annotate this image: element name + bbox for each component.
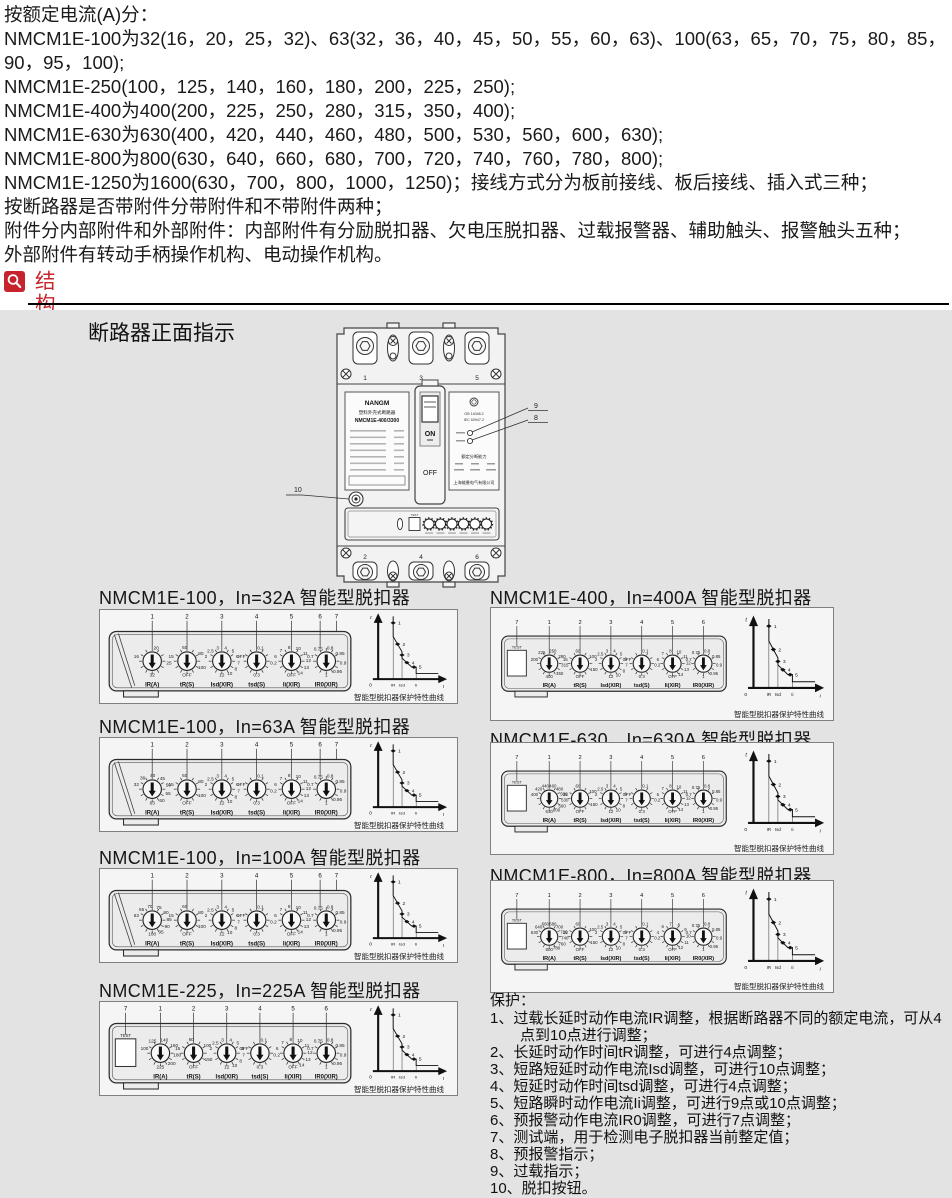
- curve-point-label: 4: [788, 941, 791, 947]
- dial-scale-value: 2.5: [597, 652, 604, 657]
- dial-scale-value: 10: [296, 646, 302, 651]
- callout-number: 6: [318, 742, 322, 749]
- curve-caption: 智能型脱扣器保护特性曲线: [345, 951, 453, 962]
- trip-curve-chart: t012345IRIsdIiI: [739, 747, 825, 837]
- curve-point-label: 4: [412, 660, 415, 665]
- dial-scale-value: 12: [608, 947, 613, 952]
- unit-section-title: NMCM1E-100，In=100A 智能型脱扣器: [99, 844, 421, 870]
- dial-scale-value: 60: [576, 648, 581, 653]
- x-tick-label: IR: [391, 1075, 395, 1080]
- dial-scale-value: 0.9: [340, 1052, 347, 1057]
- protection-item: 3、短路短延时动作电流Isd调整，可进行10点调整；: [490, 1061, 950, 1078]
- dial-scale-value: 0.1: [642, 784, 649, 789]
- curve-point-label: 5: [795, 945, 798, 951]
- unit-section-title: NMCM1E-225，In=225A 智能型脱扣器: [99, 977, 421, 1003]
- dial-scale-value: OFF: [668, 947, 677, 952]
- callout-number: 4: [640, 893, 643, 899]
- curve-point-label: 3: [407, 1045, 410, 1050]
- dial-scale-value: 0.7: [307, 913, 314, 918]
- dial-scale-value: OFF: [576, 947, 585, 952]
- curve-point-label: 2: [778, 782, 781, 788]
- dial-scale-value: 100: [198, 793, 206, 798]
- trip-button: [349, 492, 363, 506]
- dial-scale-value: 0.3: [253, 801, 260, 806]
- intro-line: NMCM1E-800为800(630，640，660，680，700，720，7…: [4, 147, 950, 171]
- origin-label: 0: [369, 811, 372, 816]
- dial-scale-value: 4: [229, 1037, 232, 1042]
- unit-section-title: NMCM1E-100，In=32A 智能型脱扣器: [99, 584, 410, 610]
- dial-scale-value: 225: [538, 650, 546, 655]
- dial-label: Ii(XIR): [665, 818, 681, 824]
- x-axis-label: I: [443, 684, 445, 689]
- dial-label: IR0(XIR): [315, 941, 338, 947]
- dial-scale-value: OFF: [287, 932, 297, 937]
- callout-number: 5: [671, 893, 674, 899]
- curve-point-marker: [391, 1013, 396, 1017]
- dial-scale-value: 60: [159, 798, 165, 803]
- dial-label: IR(A): [145, 810, 159, 816]
- brand-logo: NANGM: [365, 400, 390, 407]
- dial-scale-value: 75: [156, 905, 162, 910]
- dial-scale-value: 1: [325, 932, 328, 937]
- dial-scale-value: 0.7: [686, 792, 693, 797]
- dial-scale-value: 2: [205, 913, 208, 918]
- protection-item: 7、测试端，用于检测电子脱扣器当前整定值；: [490, 1129, 950, 1146]
- curve-point-label: 2: [402, 770, 405, 775]
- dial-scale-value: 10: [296, 905, 302, 910]
- dial-scale-value: 12: [608, 674, 613, 679]
- x-tick-label: Isd: [775, 692, 782, 697]
- dial-scale-value: 8: [290, 1037, 293, 1042]
- callout-number: 3: [220, 873, 224, 880]
- svg-text:GB 14048.2: GB 14048.2: [464, 412, 483, 416]
- dial-scale-value: 25: [166, 660, 172, 665]
- dial-scale-value: OFF: [623, 792, 632, 797]
- dial-scale-value: 14: [298, 799, 304, 804]
- protection-item: 4、短延时动作时间tsd调整，可进行4点调整；: [490, 1078, 950, 1095]
- curve-point-marker: [771, 921, 776, 925]
- svg-text:4: 4: [419, 554, 423, 561]
- dial-scale-value: 40: [150, 773, 156, 778]
- trip-curve-chart: t012345IRIsdIiI: [739, 612, 825, 702]
- callout-9: 9: [534, 403, 538, 410]
- dial-scale-value: 14: [299, 1063, 305, 1068]
- dial-scale-value: 0.7: [307, 654, 314, 659]
- curve-point-marker: [395, 1034, 400, 1038]
- curve-point-marker: [771, 783, 776, 787]
- dial-scale-value: 4: [224, 773, 227, 778]
- dial-scale-value: 2.5: [212, 1041, 219, 1046]
- x-tick-label: Ii: [415, 811, 417, 816]
- dial-scale-value: 0.9: [716, 936, 723, 941]
- dial-scale-value: 0.95: [333, 928, 343, 933]
- x-tick-label: Ii: [791, 827, 793, 832]
- dial-label: tsd(S): [248, 941, 265, 947]
- dial-scale-value: 15: [175, 1046, 181, 1051]
- unit-section-box: TEST712345663064066068070072074076078080…: [490, 880, 834, 993]
- dial-label: tsd(S): [248, 682, 265, 688]
- dial-scale-value: 7: [237, 919, 240, 924]
- origin-label: 0: [744, 965, 747, 971]
- intro-line: 外部附件有转动手柄操作机构、电动操作机构。: [4, 243, 950, 267]
- dial-scale-value: 8: [288, 904, 291, 909]
- dial-scale-value: 14: [678, 672, 683, 677]
- dial-scale-value: 32: [134, 782, 140, 787]
- dial-scale-value: 7: [280, 648, 283, 653]
- curve-point-label: 4: [412, 788, 415, 793]
- curve-point-label: 1: [398, 749, 401, 754]
- dial-scale-value: 0.85: [336, 779, 346, 784]
- dial-scale-value: OFF: [182, 673, 192, 678]
- svg-text:额定分断能力: 额定分断能力: [461, 453, 486, 460]
- curve-point-label: 5: [795, 807, 798, 813]
- curve-caption: 智能型脱扣器保护特性曲线: [729, 843, 829, 854]
- callout-number: 4: [255, 873, 259, 880]
- y-axis-label: t: [370, 1007, 372, 1013]
- dial-scale-value: 8: [234, 667, 237, 672]
- y-axis-label: t: [745, 753, 747, 759]
- unit-section-box: TEST7123456100125140160180200225IR(A)156…: [99, 1001, 458, 1096]
- dial-scale-value: OFF: [236, 654, 246, 659]
- svg-text:塑料外壳式断路器: 塑料外壳式断路器: [359, 409, 396, 416]
- callout-number: 4: [255, 614, 259, 621]
- callout-number: 5: [290, 873, 294, 880]
- dial-scale-value: OFF: [287, 801, 297, 806]
- dial-scale-value: 6: [274, 913, 277, 918]
- dial-scale-value: OFF: [668, 674, 677, 679]
- curve-point-marker: [391, 880, 396, 884]
- dial-label: tsd(S): [634, 956, 650, 962]
- dial-label: IR(A): [543, 956, 556, 962]
- dial-label: Isd(XIR): [211, 810, 233, 816]
- dial-scale-value: 80: [198, 910, 204, 915]
- dial-label: IR0(XIR): [693, 683, 715, 689]
- dial-scale-value: 0.7: [686, 930, 693, 935]
- dial-label: tR(S): [573, 818, 586, 824]
- dial-scale-value: 0.1: [642, 649, 649, 654]
- dial-scale-value: 8: [234, 795, 237, 800]
- dial-scale-value: 7: [280, 776, 283, 781]
- dial-scale-value: 0.85: [336, 1043, 346, 1048]
- dial-scale-value: 2.5: [207, 908, 214, 913]
- x-tick-label: Isd: [399, 1075, 406, 1080]
- x-tick-label: Isd: [775, 965, 782, 970]
- intro-line: 按额定电流(A)分：: [4, 3, 950, 27]
- dial-scale-value: 0.75: [314, 1039, 324, 1044]
- dial-scale-value: 0.75: [692, 785, 701, 790]
- dial-scale-value: 60: [576, 783, 581, 788]
- trip-unit-drawing: TEST7123456200225250280315350400IR(A)156…: [494, 617, 732, 701]
- dial-scale-value: 4: [224, 645, 227, 650]
- trip-curve-chart: t012345IRIsdIiI: [739, 885, 825, 975]
- curve-point-marker: [391, 621, 396, 625]
- dial-scale-value: 10: [232, 1063, 238, 1068]
- svg-text:5: 5: [475, 375, 479, 382]
- dial-scale-value: OFF: [287, 673, 297, 678]
- dial-scale-value: OFF: [288, 1065, 298, 1070]
- x-axis-label: I: [443, 1076, 445, 1081]
- curve-point-label: 2: [778, 920, 781, 926]
- dial-scale-value: 200: [531, 657, 539, 662]
- callout-number: 6: [702, 893, 705, 899]
- protection-item: 5、短路瞬时动作电流Ii调整，可进行9点或10点调整；: [490, 1095, 950, 1112]
- trip-curve-chart: t012345IRIsdIiI: [364, 738, 448, 820]
- curve-point-label: 1: [774, 624, 777, 630]
- dial-scale-value: 10: [296, 774, 302, 779]
- dial-label: Isd(XIR): [211, 682, 233, 688]
- dial-label: Ii(XIR): [665, 683, 681, 689]
- dial-scale-value: 0.75: [314, 647, 324, 652]
- dial-scale-value: 10: [616, 945, 621, 950]
- dial-scale-value: 8: [288, 773, 291, 778]
- x-axis-label: I: [820, 829, 822, 835]
- dial-scale-value: 10: [227, 671, 233, 676]
- x-axis-label: I: [820, 967, 822, 973]
- dial-scale-value: 13: [304, 924, 310, 929]
- dial-scale-value: 5: [232, 648, 235, 653]
- dial-scale-value: 630: [546, 809, 554, 814]
- dial-scale-value: OFF: [668, 809, 677, 814]
- origin-label: 0: [369, 1075, 372, 1080]
- dial-label: Isd(XIR): [216, 1074, 238, 1080]
- dial-scale-value: 0.3: [253, 932, 260, 937]
- trip-unit-drawing: TEST712345640042044046048050053056060063…: [494, 752, 732, 836]
- callout-number: 3: [225, 1006, 229, 1013]
- intro-line: 按断路器是否带附件分带附件和不带附件两种；: [4, 195, 950, 219]
- model-number: NMCM1E-400/3300: [355, 418, 399, 424]
- dial-scale-value: 8: [288, 645, 291, 650]
- x-tick-label: IR: [767, 692, 772, 697]
- callout-number: 6: [318, 873, 322, 880]
- dial-label: Isd(XIR): [211, 941, 233, 947]
- dial-label: IR(A): [145, 682, 159, 688]
- curve-point-label: 1: [398, 880, 401, 885]
- dial-scale-value: 32: [150, 673, 156, 678]
- curve-point-label: 4: [788, 803, 791, 809]
- dial-label: Ii(XIR): [283, 810, 300, 816]
- test-port: [507, 923, 526, 949]
- protection-item: 9、过载指示；: [490, 1163, 950, 1180]
- y-axis-label: t: [745, 618, 747, 624]
- callout-number: 2: [185, 614, 189, 621]
- dial-scale-value: 4: [224, 904, 227, 909]
- callout-number: 5: [671, 620, 674, 626]
- curve-caption: 智能型脱扣器保护特性曲线: [345, 1084, 453, 1095]
- dial-scale-value: 800: [546, 947, 554, 952]
- callout-number: 2: [578, 755, 581, 761]
- dial-scale-value: 0.75: [692, 923, 701, 928]
- callout-number: 5: [290, 742, 294, 749]
- dial-scale-value: 3: [216, 645, 219, 650]
- curve-point-label: 1: [774, 897, 777, 903]
- dial-scale-value: 0.95: [710, 671, 719, 676]
- dial-scale-value: 2.5: [597, 925, 604, 930]
- dial-scale-value: 0.2: [654, 798, 661, 803]
- curve-caption: 智能型脱扣器保护特性曲线: [345, 820, 453, 831]
- dial-scale-value: 7: [237, 660, 240, 665]
- dial-scale-value: 225: [156, 1065, 164, 1070]
- curve-point-label: 3: [783, 932, 786, 938]
- curve-point-label: 1: [398, 1013, 401, 1018]
- dial-scale-value: OFF: [623, 657, 632, 662]
- dial-label: tsd(S): [248, 810, 265, 816]
- trip-unit-drawing: TEST7123456100125140160180200225IR(A)156…: [101, 1003, 357, 1093]
- callout-number: 5: [671, 755, 674, 761]
- magnifier-icon: [4, 271, 25, 292]
- dial-scale-value: 1: [325, 673, 328, 678]
- callout-number: 7: [335, 742, 339, 749]
- dial-scale-value: 80: [198, 779, 204, 784]
- prealarm-led: [467, 438, 472, 443]
- rating-panel: GB 14048.2 IEC 60947-2 额定分断能力 上海能曼电气有限公司: [449, 392, 499, 490]
- unit-section-box: 12345673236404550556063IR(A)156080100OFF…: [99, 737, 458, 832]
- dial-scale-value: 60: [189, 1037, 195, 1042]
- dial-scale-value: 0.8: [327, 904, 334, 909]
- callout-number: 7: [515, 620, 518, 626]
- svg-text:TEST: TEST: [411, 513, 418, 517]
- callout-number: 3: [220, 742, 224, 749]
- dial-scale-value: 0.2: [270, 919, 277, 924]
- dial-scale-value: 0.2: [654, 663, 661, 668]
- dial-scale-value: 315: [561, 663, 569, 668]
- dial-scale-value: 15: [169, 654, 175, 659]
- dial-scale-value: 0.95: [333, 1061, 343, 1066]
- x-axis-label: I: [820, 694, 822, 700]
- dial-label: Ii(XIR): [665, 956, 681, 962]
- curve-point-label: 2: [402, 642, 405, 647]
- callout-number: 1: [150, 614, 154, 621]
- curve-point-marker: [775, 659, 780, 663]
- trip-unit-drawing: 123456716202532IR(A)156080100OFFtR(S)22.…: [101, 611, 357, 701]
- dial-scale-value: 0.85: [336, 910, 346, 915]
- callout-number: 4: [258, 1006, 262, 1013]
- callout-number: 7: [335, 873, 339, 880]
- callout-number: 5: [291, 1006, 295, 1013]
- dial-label: IR0(XIR): [315, 682, 338, 688]
- curve-point-marker: [771, 648, 776, 652]
- unit-section-box: TEST712345640042044046048050053056060063…: [490, 742, 834, 855]
- origin-label: 0: [744, 692, 747, 698]
- curve-point-label: 5: [419, 665, 422, 670]
- dial-scale-value: 10: [297, 1038, 303, 1043]
- protection-item: 1、过载长延时动作电流IR调整，根据断路器不同的额定电流，可从4点到10点进行调…: [490, 1010, 950, 1044]
- dial-scale-value: 0.85: [336, 651, 346, 656]
- callout-number: 7: [515, 893, 518, 899]
- intro-line: 附件分内部附件和外部附件：内部附件有分励脱扣器、欠电压脱扣器、过载报警器、辅助触…: [4, 219, 950, 243]
- protection-list: 保护： 1、过载长延时动作电流IR调整，根据断路器不同的额定电流，可从4点到10…: [490, 992, 950, 1197]
- curve-point-marker: [775, 932, 780, 936]
- dial-scale-value: 0.95: [710, 944, 719, 949]
- x-tick-label: IR: [391, 683, 395, 688]
- dial-scale-value: 0.8: [704, 784, 711, 789]
- curve-point-label: 5: [419, 924, 422, 929]
- dial-scale-value: 70: [147, 904, 153, 909]
- trip-unit-drawing: 12345673236404550556063IR(A)156080100OFF…: [101, 739, 357, 829]
- dial-scale-value: 0.9: [340, 788, 347, 793]
- dial-scale-value: 630: [531, 930, 539, 935]
- dial-scale-value: 60: [182, 773, 188, 778]
- callout-number: 3: [609, 893, 612, 899]
- x-tick-label: Ii: [415, 683, 417, 688]
- curve-point-marker: [399, 653, 404, 657]
- dial-scale-value: 14: [678, 807, 683, 812]
- curve-point-marker: [395, 642, 400, 646]
- dial-label: tR(S): [573, 956, 586, 962]
- dial-scale-value: 6: [274, 782, 277, 787]
- x-tick-label: IR: [767, 965, 772, 970]
- unit-section-box: TEST7123456200225250280315350400IR(A)156…: [490, 607, 834, 721]
- callout-number: 7: [124, 1006, 128, 1013]
- dial-label: tR(S): [573, 683, 586, 689]
- intro-line: NMCM1E-1250为1600(630，700，800，1000，1250)；…: [4, 171, 950, 195]
- dial-scale-value: 0.9: [716, 663, 723, 668]
- curve-point-label: 1: [774, 759, 777, 765]
- dial-label: Isd(XIR): [600, 683, 621, 689]
- svg-text:2: 2: [363, 554, 367, 561]
- dial-scale-value: 11: [684, 940, 689, 945]
- intro-line: NMCM1E-100为32(16，20，25，32)、63(32，36，40，4…: [4, 27, 950, 51]
- curve-point-label: 3: [407, 912, 410, 917]
- adjustment-strip: TEST: [345, 508, 499, 540]
- callout-number: 1: [150, 873, 154, 880]
- trip-curve-chart: t012345IRIsdIiI: [364, 1002, 448, 1084]
- dial-scale-value: 0.3: [639, 809, 646, 814]
- dial-scale-value: 15: [563, 930, 568, 935]
- header-rule: [28, 303, 949, 305]
- dial-scale-value: OFF: [623, 930, 632, 935]
- x-tick-label: IR: [767, 827, 772, 832]
- callout-number: 4: [640, 755, 643, 761]
- dial-scale-value: 12: [678, 945, 683, 950]
- dial-scale-value: 740: [561, 936, 569, 941]
- dial-scale-value: 0.7: [307, 782, 314, 787]
- dial-scale-value: 10: [616, 807, 621, 812]
- dial-scale-value: 0.95: [333, 669, 343, 674]
- dial-scale-value: 780: [553, 945, 561, 950]
- x-tick-label: Ii: [791, 965, 793, 970]
- dial-scale-value: 1: [325, 801, 328, 806]
- dial-scale-value: 0.3: [257, 1065, 264, 1070]
- dial-scale-value: 0.2: [270, 660, 277, 665]
- dial-scale-value: 10: [227, 799, 233, 804]
- dial-scale-value: 12: [219, 673, 225, 678]
- dial-scale-value: 180: [173, 1052, 181, 1057]
- dial-scale-value: 15: [563, 792, 568, 797]
- protection-title: 保护：: [490, 992, 950, 1009]
- dial-scale-value: 0.7: [307, 1046, 314, 1051]
- callout-number: 4: [640, 620, 643, 626]
- dial-scale-value: 2.5: [207, 649, 214, 654]
- dial-scale-value: 0.95: [333, 797, 343, 802]
- dial-scale-value: 95: [158, 930, 164, 935]
- curve-point-label: 3: [783, 659, 786, 665]
- trip-curve-chart: t012345IRIsdIiI: [364, 869, 448, 951]
- dial-scale-value: 60: [182, 904, 188, 909]
- dial-label: Ii(XIR): [285, 1074, 302, 1080]
- dial-scale-value: 13: [684, 667, 689, 672]
- callout-number: 4: [255, 742, 259, 749]
- dial-label: Isd(XIR): [600, 818, 621, 824]
- dial-scale-value: 250: [549, 649, 557, 654]
- dial-scale-value: 0.2: [654, 936, 661, 941]
- x-axis-label: I: [443, 812, 445, 817]
- callout-number: 5: [290, 614, 294, 621]
- dial-scale-value: 1: [325, 1065, 328, 1070]
- dial-scale-value: OFF: [189, 1065, 199, 1070]
- unit-section-title: NMCM1E-100，In=63A 智能型脱扣器: [99, 713, 410, 739]
- callout-number: 1: [159, 1006, 163, 1013]
- intro-line: NMCM1E-250(100，125，140，160，180，200，225，2…: [4, 75, 950, 99]
